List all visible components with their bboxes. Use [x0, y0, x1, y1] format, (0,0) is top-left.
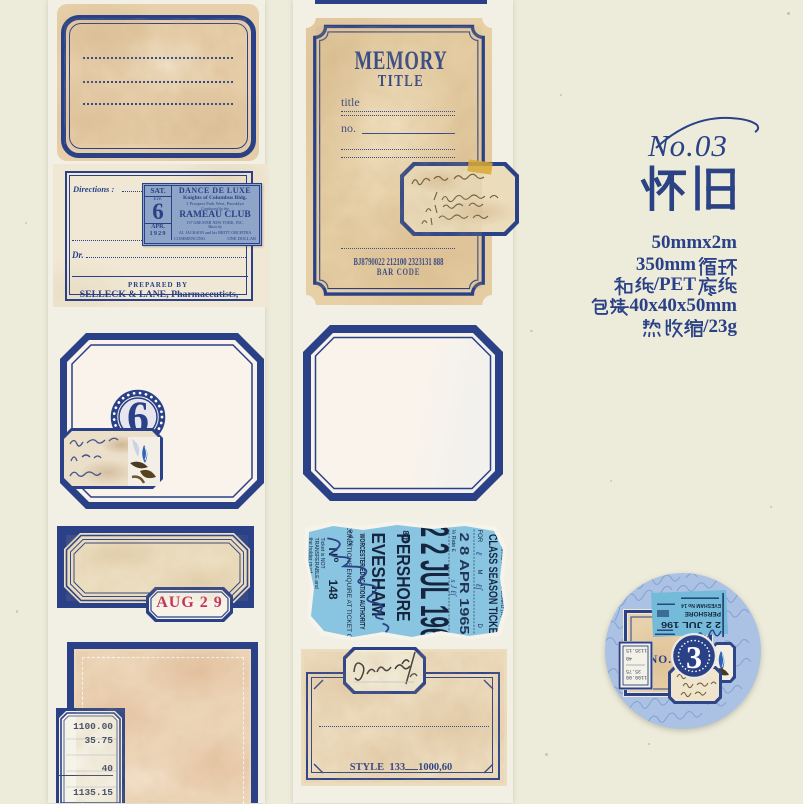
svg-text:40: 40 [626, 655, 632, 661]
svg-text:2 2 JUL 196: 2 2 JUL 196 [661, 620, 721, 630]
svg-text:FOR: FOR [476, 530, 482, 543]
svg-text:2 2 JUL 196: 2 2 JUL 196 [412, 526, 456, 640]
svg-text:1135.15: 1135.15 [626, 647, 647, 653]
svg-text:148: 148 [326, 580, 340, 600]
svg-text:2 8 APR 1965: 2 8 APR 1965 [457, 533, 472, 635]
svg-text:OR CONDITIONS ENQUIRE AT TICKE: OR CONDITIONS ENQUIRE AT TICKET OFF [345, 518, 352, 644]
svg-text:D: D [476, 624, 482, 629]
svg-text:CLASS SEASON TICKET: CLASS SEASON TICKET [486, 534, 500, 639]
svg-text:EVESHAM No 14: EVESHAM No 14 [681, 602, 721, 608]
svg-text:PERSHORE: PERSHORE [393, 534, 413, 622]
svg-text:o: o [332, 558, 341, 563]
svg-text:M: M [476, 570, 482, 575]
svg-text:WORCESTER EDUCATION AUTHORITY: WORCESTER EDUCATION AUTHORITY [358, 534, 367, 630]
svg-text:PERSHORE: PERSHORE [684, 610, 721, 617]
svg-text:ℓ: ℓ [474, 552, 484, 556]
svg-text:35.75: 35.75 [626, 668, 641, 674]
svg-text:3: 3 [686, 639, 702, 675]
